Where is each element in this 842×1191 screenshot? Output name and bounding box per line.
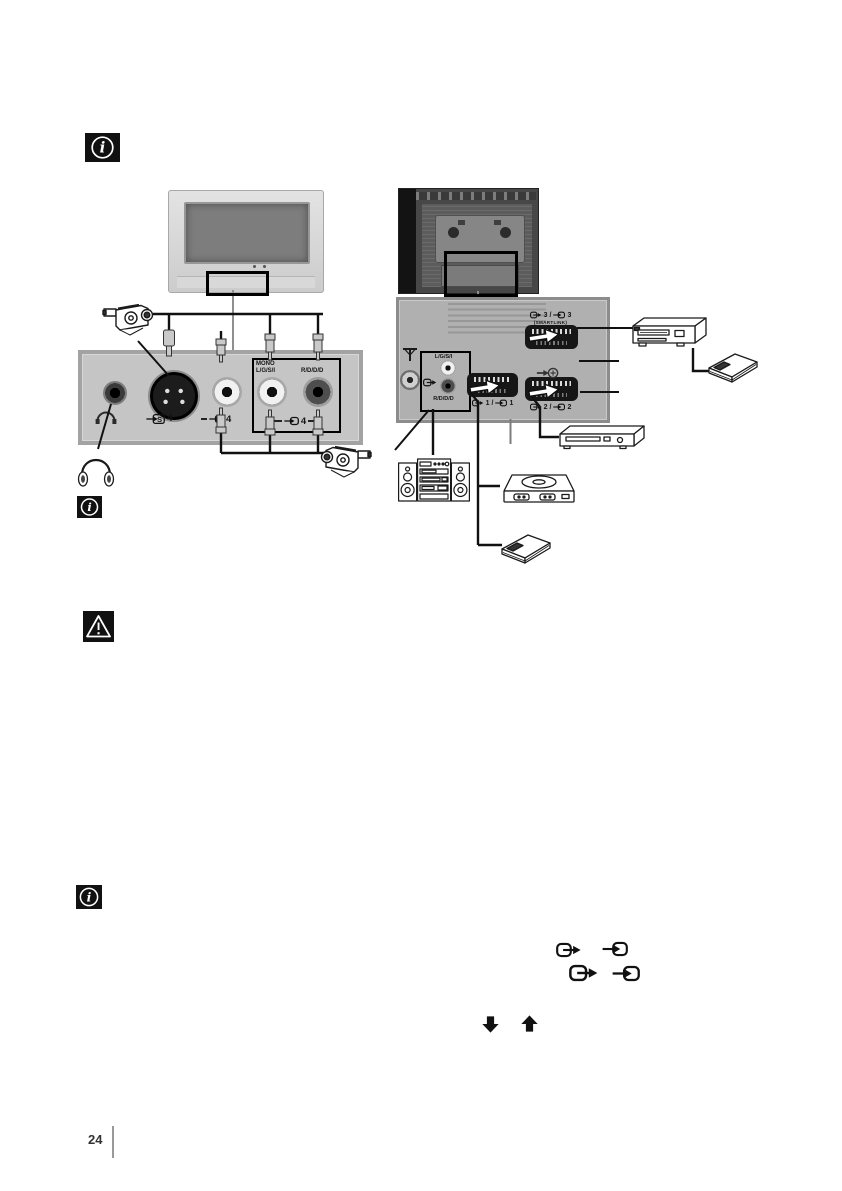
scart1-in-number: 1 xyxy=(509,400,513,407)
scart3-label: 3/ 3 xyxy=(523,310,578,320)
scart3-in-number: 3 xyxy=(567,312,571,319)
info-icon: i xyxy=(85,133,120,162)
footer-rule xyxy=(112,1126,114,1158)
svg-text:S: S xyxy=(157,414,162,423)
av-out-icon xyxy=(569,964,599,987)
video-jack xyxy=(212,377,242,407)
arrow-down-icon xyxy=(481,1015,500,1039)
scart1-connector xyxy=(467,373,518,397)
tv-screen xyxy=(184,202,310,264)
tv-led xyxy=(253,265,256,268)
av-in-icon xyxy=(553,403,565,411)
info-icon: i xyxy=(77,496,102,518)
av-in-s-icon: S xyxy=(146,413,165,425)
label-separator: / xyxy=(492,400,494,407)
scart2-label: 2/ 2 xyxy=(523,402,578,412)
av-out-icon xyxy=(530,403,542,411)
warning-icon xyxy=(83,611,114,642)
camcorder-illustration xyxy=(103,305,153,335)
scart2-in-number: 2 xyxy=(567,404,571,411)
tv-led xyxy=(263,265,266,268)
dvd-player-illustration xyxy=(560,426,644,449)
tv-rear-detail xyxy=(494,220,501,225)
tv-rear-side xyxy=(399,189,416,293)
av-in-icon xyxy=(602,941,628,962)
front-callout-line xyxy=(232,290,234,350)
label-separator: / xyxy=(550,404,552,411)
audio-right-jack xyxy=(303,377,333,407)
av-in-icon xyxy=(553,311,565,319)
scart2-out-number: 2 xyxy=(544,404,548,411)
svg-text:i: i xyxy=(87,889,92,904)
av-in-icon xyxy=(209,414,224,424)
audio-left-label: L/G/S/I xyxy=(256,368,275,374)
tv-rear-detail xyxy=(458,220,465,225)
label-dash xyxy=(201,418,207,420)
svg-text:i: i xyxy=(100,139,106,157)
tv-rear-vents xyxy=(416,192,536,200)
audio-out-left-jack xyxy=(440,360,456,376)
av-in-icon xyxy=(284,416,299,426)
audio-left-jack xyxy=(257,377,287,407)
svideo-number: 4 xyxy=(167,413,173,424)
av-in-icon xyxy=(612,965,640,987)
arrow-up-icon xyxy=(520,1014,539,1038)
scart1-label: 1/ 1 xyxy=(465,398,520,408)
av-link-icon xyxy=(536,366,559,384)
video-number: 4 xyxy=(226,414,231,425)
av-out-icon xyxy=(472,399,484,407)
audio-number: 4 xyxy=(301,416,306,427)
page-number: 24 xyxy=(88,1132,102,1147)
av-out-icon xyxy=(530,311,542,319)
smartlink-label: (SMARTLINK) xyxy=(523,320,578,325)
svg-text:i: i xyxy=(87,500,91,514)
rear-panel-callout-box xyxy=(444,251,518,297)
videotape-illustration xyxy=(709,354,757,382)
label-dash xyxy=(308,420,317,422)
audio-out-right-label: R/D/D/D xyxy=(420,396,467,402)
audio-right-label: R/D/D/D xyxy=(301,368,323,374)
antenna-icon xyxy=(401,347,419,367)
videotape-illustration xyxy=(502,535,550,563)
tv-rear-screw xyxy=(448,227,459,238)
scart3-out-number: 3 xyxy=(544,312,548,319)
video-label: 4 xyxy=(201,413,231,425)
tv-rear-screw xyxy=(500,227,511,238)
av-in-icon xyxy=(495,399,507,407)
manual-page: i S 4 4 MON xyxy=(0,0,842,1191)
audio-mono-label: MONO xyxy=(256,361,275,367)
label-dash xyxy=(273,420,282,422)
svideo-label: S 4 xyxy=(146,412,173,425)
av-out-icon xyxy=(556,942,582,963)
game-console-illustration xyxy=(504,475,574,502)
cables-and-devices-layer xyxy=(0,0,842,1191)
front-panel-callout-box xyxy=(206,271,269,296)
scart1-out-number: 1 xyxy=(486,400,490,407)
camcorder-illustration xyxy=(322,447,372,477)
av-out-icon xyxy=(423,374,437,392)
antenna-input-jack xyxy=(400,370,420,390)
label-separator: / xyxy=(550,312,552,319)
audio-out-left-label: L/G/S/I xyxy=(420,354,467,360)
headphones-illustration xyxy=(79,460,114,486)
scart3-connector xyxy=(525,325,578,349)
headphone-print-icon xyxy=(94,408,118,430)
audio-input-label: 4 xyxy=(256,415,334,427)
hifi-system-illustration xyxy=(399,459,470,501)
info-icon: i xyxy=(76,885,102,909)
vcr-illustration xyxy=(633,318,706,346)
headphone-jack xyxy=(103,381,127,405)
audio-out-right-jack xyxy=(440,378,456,394)
